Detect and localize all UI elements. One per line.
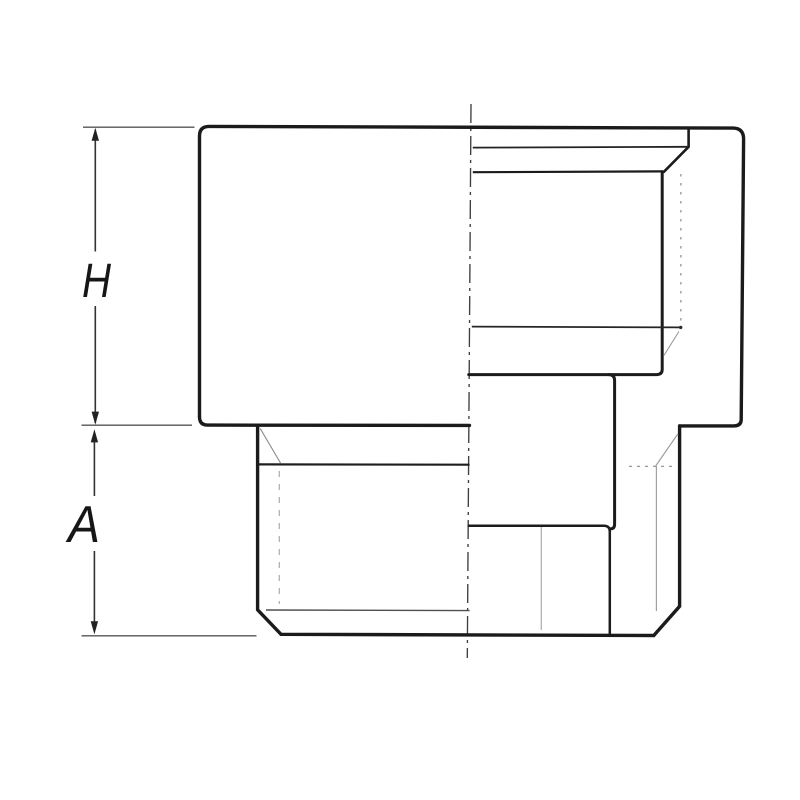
svg-text:H: H (82, 255, 111, 308)
svg-text:A: A (65, 496, 100, 554)
